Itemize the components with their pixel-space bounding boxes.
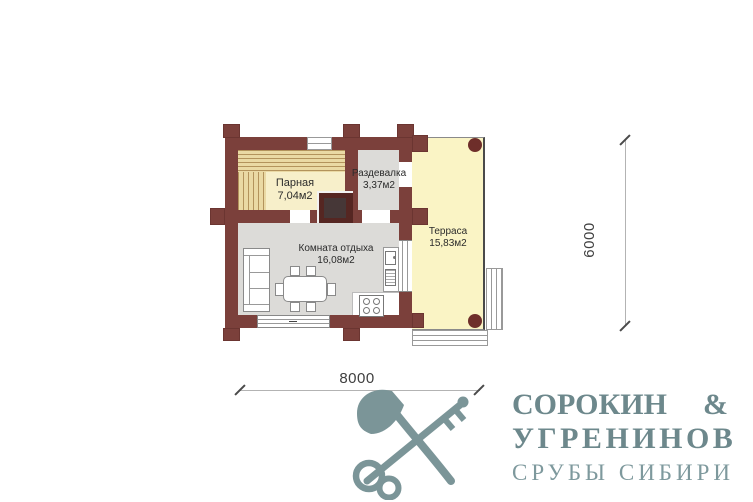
chair [327,283,336,296]
sofa-backrest [244,256,250,304]
logo-brand-name: СОРОКИН [512,388,667,422]
chair [290,266,300,276]
room-name: Парная [255,177,335,190]
sofa-armrest [244,304,269,311]
room-area: 15,83м2 [408,238,488,250]
burner [373,307,380,314]
chair [306,266,316,276]
burner [363,307,370,314]
sofa-cushion-line [250,288,269,289]
steps-bottom [412,330,488,346]
label-parnaya: Парная 7,04м2 [255,177,335,203]
logo-ampersand: & [703,388,728,422]
terrace-post [468,314,482,328]
window-pane-line [308,143,331,144]
axe-and-key-icon [345,383,485,500]
log-end [412,208,428,225]
dimension-line-vertical [625,140,626,326]
sauna-bench-top [238,150,345,172]
logo: СОРОКИН & УГРЕНИНОВ СРУБЫ СИБИРИ [345,383,745,500]
sofa-cushion-line [250,272,269,273]
room-name: Комната отдыха [286,243,386,255]
sofa [243,248,270,312]
label-terrasa: Терраса 15,83м2 [408,226,488,250]
room-area: 7,04м2 [255,190,335,203]
window-center-tick [289,321,297,322]
steps-right [486,268,503,330]
sofa-armrest [244,249,269,256]
floorplan-canvas: Парная 7,04м2 Раздевалка 3,37м2 Комната … [0,0,753,502]
window-pane-line [258,319,329,320]
burner [373,298,380,305]
door-parnaya [290,210,310,223]
dining-table [283,276,327,302]
log-end [223,328,240,341]
log-end [412,135,428,152]
log-end [412,313,424,328]
wall-left [225,137,238,328]
room-area: 3,37м2 [338,180,420,192]
log-end [210,208,225,225]
logo-tagline: СРУБЫ СИБИРИ [512,458,728,488]
burner [363,298,370,305]
faucet-dot [393,256,396,259]
logo-brand-line2: УГРЕНИНОВ [512,422,728,456]
dish-rack [385,269,396,286]
log-end [223,124,240,138]
chair [306,302,316,312]
dimension-label-vertical: 6000 [575,208,605,272]
label-razdevalka: Раздевалка 3,37м2 [338,168,420,192]
door-razdevalka [362,210,390,223]
room-name: Раздевалка [338,168,420,180]
window-pane-line [258,323,329,324]
room-name: Терраса [408,226,488,238]
room-area: 16,08м2 [286,255,386,267]
cooktop [359,295,384,317]
window-top [307,137,332,150]
terrace-post [468,138,482,152]
log-end [343,328,360,341]
window-bottom [257,315,330,328]
log-end [343,124,360,138]
logo-brand-line1: СОРОКИН & [512,388,728,422]
chair [290,302,300,312]
logo-text: СОРОКИН & УГРЕНИНОВ СРУБЫ СИБИРИ [512,388,728,488]
label-komnata: Комната отдыха 16,08м2 [286,243,386,267]
